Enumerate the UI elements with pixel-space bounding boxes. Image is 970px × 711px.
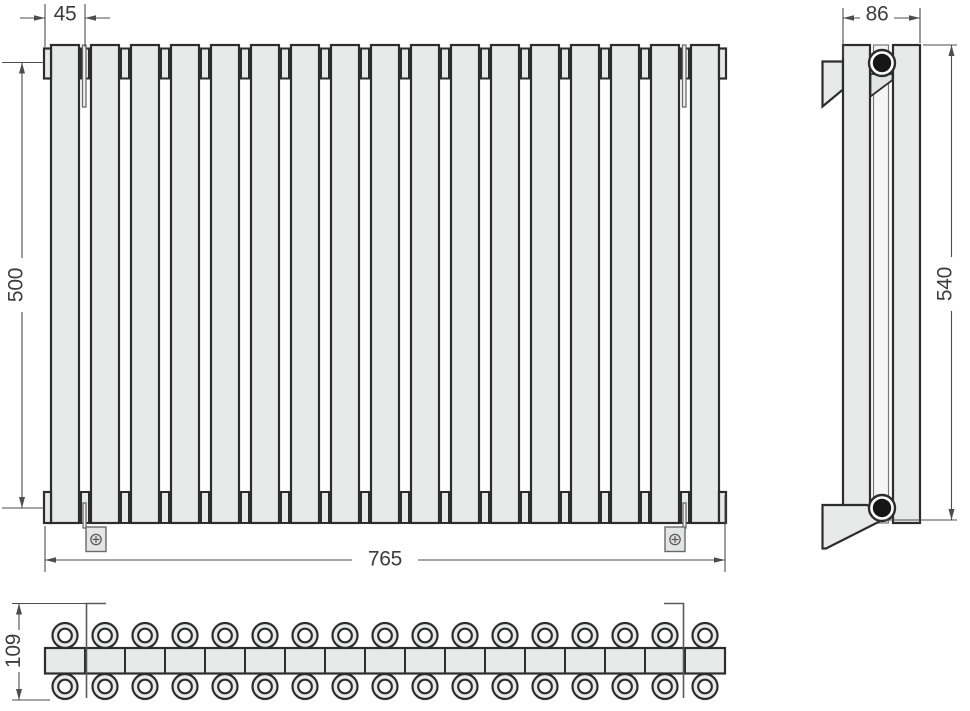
tube-inner-icon [58, 680, 72, 694]
tube-inner-icon [578, 680, 592, 694]
top-collector-joint [201, 49, 209, 79]
front-slat [491, 45, 519, 523]
bottom-collector-joint [321, 492, 329, 523]
arrowhead-icon [909, 15, 920, 21]
side-bracket-top [823, 62, 844, 107]
tube-inner-icon [618, 629, 632, 643]
front-slat [611, 45, 639, 523]
left-bottom-cap [44, 492, 51, 523]
tube-inner-icon [218, 629, 232, 643]
tube-inner-icon [338, 629, 352, 643]
tube-inner-icon [138, 629, 152, 643]
tube-inner-icon [178, 629, 192, 643]
arrowhead-icon [949, 45, 955, 56]
bracket-rod-right [683, 503, 686, 528]
tube-inner-icon [418, 680, 432, 694]
dim-section-width: 45 [20, 3, 110, 48]
dim-total-height-label: 540 [934, 267, 957, 301]
front-slat [371, 45, 399, 523]
bracket-hook-right-icon [683, 45, 687, 107]
bottom-collector-joint [241, 492, 249, 523]
arrowhead-icon [19, 497, 25, 508]
front-slat [571, 45, 599, 523]
top-collector-joint [161, 49, 169, 79]
front-slat [171, 45, 199, 523]
front-slats [51, 45, 719, 523]
top-band [45, 648, 725, 674]
tube-inner-icon [538, 629, 552, 643]
dim-section-width-label: 45 [54, 3, 77, 26]
tube-inner-icon [698, 680, 712, 694]
tube-inner-icon [298, 629, 312, 643]
side-collector-tube [874, 45, 889, 523]
top-collector-joint [481, 49, 489, 79]
tube-inner-icon [578, 629, 592, 643]
bottom-collector-joint [281, 492, 289, 523]
top-collector-joint [561, 49, 569, 79]
tube-inner-icon [498, 629, 512, 643]
tube-inner-icon [378, 629, 392, 643]
front-slat [411, 45, 439, 523]
bottom-collector-joint [201, 492, 209, 523]
arrowhead-icon [85, 15, 96, 21]
bracket-rod-left [83, 503, 86, 528]
tube-inner-icon [418, 629, 432, 643]
top-collector-joint [401, 49, 409, 79]
tube-inner-icon [498, 680, 512, 694]
tube-inner-icon [98, 629, 112, 643]
side-view [823, 45, 921, 549]
side-bar-back [893, 45, 920, 523]
tube-inner-icon [538, 680, 552, 694]
tube-inner-icon [378, 680, 392, 694]
top-collector-joint [521, 49, 529, 79]
top-collector-joint [321, 49, 329, 79]
arrowhead-icon [16, 689, 22, 700]
bottom-collector-joint [401, 492, 409, 523]
screw-icon [91, 534, 101, 544]
bottom-collector-joint [601, 492, 609, 523]
tube-inner-icon [98, 680, 112, 694]
bottom-collector-joint [441, 492, 449, 523]
arrowhead-icon [949, 509, 955, 520]
tube-inner-icon [178, 680, 192, 694]
top-collector-joint [281, 49, 289, 79]
front-view [44, 45, 726, 552]
technical-drawing: 45 500 765 [0, 0, 970, 711]
front-slat [51, 45, 79, 523]
tube-inner-icon [698, 629, 712, 643]
tube-inner-icon [58, 629, 72, 643]
tube-inner-icon [258, 629, 272, 643]
tube-inner-icon [298, 680, 312, 694]
bottom-collector-joint [481, 492, 489, 523]
bottom-collector-joint [121, 492, 129, 523]
top-collector-joint [241, 49, 249, 79]
left-top-cap [44, 49, 51, 79]
tube-inner-icon [458, 629, 472, 643]
dim-depth-overall-label: 109 [2, 634, 25, 668]
dim-axis-height-label: 500 [5, 268, 28, 302]
tube-inner-icon [338, 680, 352, 694]
side-bar-front [843, 45, 870, 523]
front-slat [451, 45, 479, 523]
front-slat [251, 45, 279, 523]
arrowhead-icon [16, 604, 22, 615]
dim-axis-height: 500 [2, 63, 44, 509]
bottom-collector-joint [361, 492, 369, 523]
front-slat [651, 45, 679, 523]
top-collector-joint [641, 49, 649, 79]
front-slat [691, 45, 719, 523]
arrowhead-icon [843, 15, 854, 21]
front-slat [531, 45, 559, 523]
pipe-connection-bottom-icon [869, 495, 895, 521]
front-slat [331, 45, 359, 523]
screw-icon [670, 534, 680, 544]
front-slat [291, 45, 319, 523]
tube-inner-icon [218, 680, 232, 694]
front-slat [131, 45, 159, 523]
tube-inner-icon [458, 680, 472, 694]
front-slat [91, 45, 119, 523]
bottom-collector-joint [641, 492, 649, 523]
top-collector-joint [441, 49, 449, 79]
bottom-collector-joint [161, 492, 169, 523]
tube-inner-icon [658, 680, 672, 694]
tube-inner-icon [618, 680, 632, 694]
top-collector-joint [601, 49, 609, 79]
arrowhead-icon [34, 15, 45, 21]
bracket-hook-left-icon [83, 45, 87, 107]
top-view [45, 604, 725, 700]
arrowhead-icon [45, 557, 56, 563]
tube-inner-icon [138, 680, 152, 694]
pipe-connection-top-icon [869, 50, 895, 76]
dim-total-width-label: 765 [368, 548, 402, 571]
front-slat [211, 45, 239, 523]
dim-depth-label: 86 [866, 3, 889, 26]
top-collector-joint [361, 49, 369, 79]
tube-inner-icon [258, 680, 272, 694]
top-collector-joint [121, 49, 129, 79]
arrowhead-icon [714, 557, 725, 563]
bottom-collector-joint [561, 492, 569, 523]
right-top-cap [719, 49, 726, 79]
arrowhead-icon [19, 63, 25, 74]
tube-inner-icon [658, 629, 672, 643]
bottom-collector-joint [521, 492, 529, 523]
